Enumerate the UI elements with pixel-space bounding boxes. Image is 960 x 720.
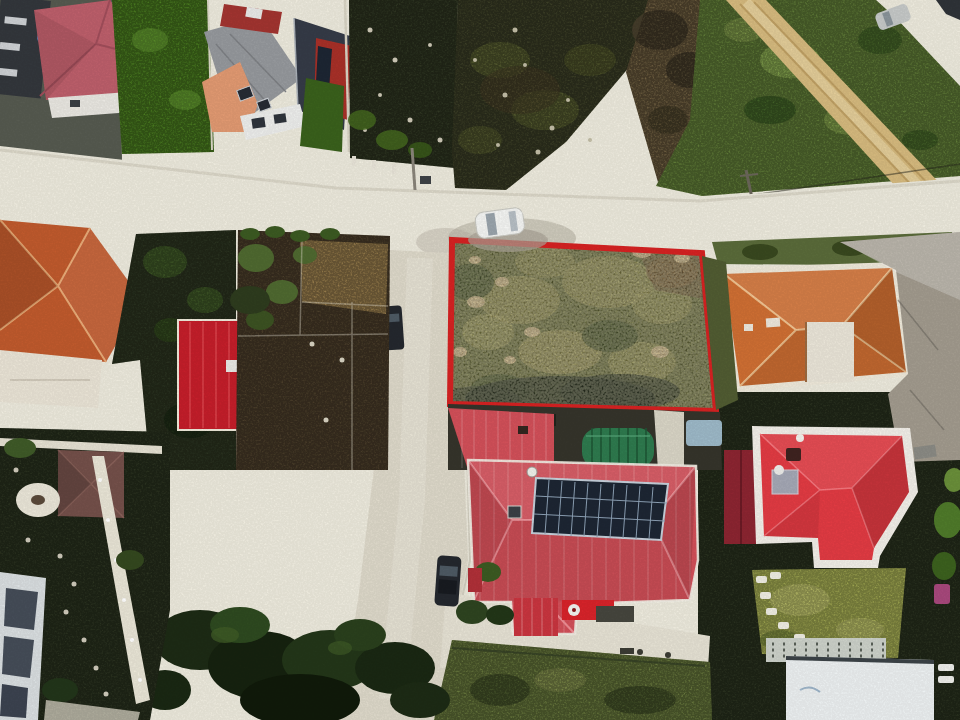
aerial-photo [0, 0, 960, 720]
photo-grain [0, 0, 960, 720]
aerial-scene [0, 0, 960, 720]
